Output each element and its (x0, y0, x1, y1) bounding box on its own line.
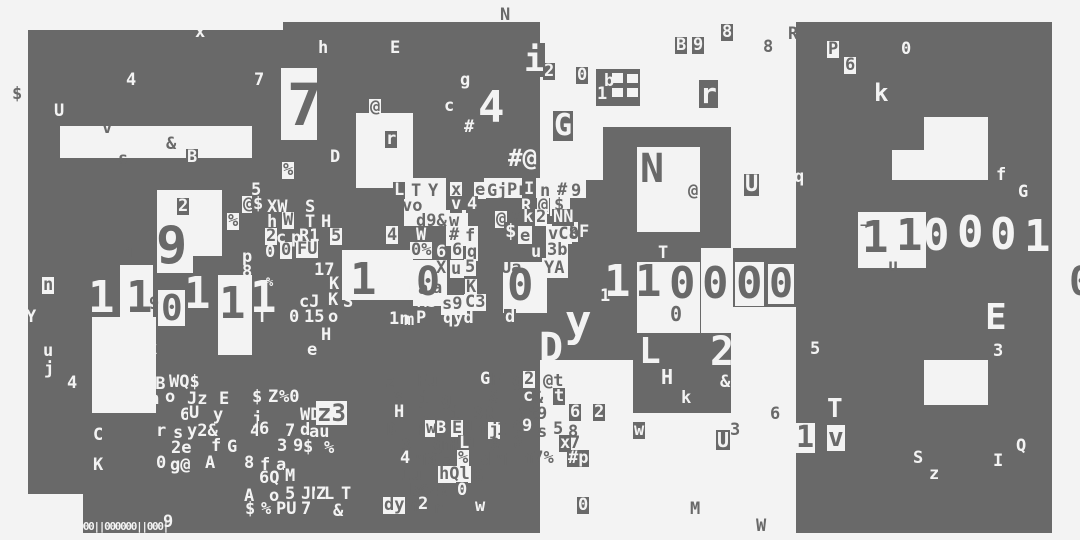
glyph: % (266, 276, 273, 288)
glyph: P (827, 41, 839, 58)
light-region (924, 117, 988, 150)
glyph: 0 (1068, 262, 1080, 302)
glyph: w (633, 422, 645, 439)
light-region (627, 74, 638, 83)
glyph: v (827, 425, 845, 451)
glyph: e (520, 228, 530, 245)
glyph: D (386, 422, 396, 439)
glyph: 0 (669, 262, 696, 306)
glyph: m (404, 312, 414, 329)
glyph: I (993, 453, 1003, 470)
glyph: P (415, 310, 427, 327)
glyph: 0 (155, 455, 167, 472)
glyph: YA (544, 260, 564, 277)
glyph: r (155, 423, 167, 440)
glyph: 4 (67, 375, 77, 392)
glyph: u (888, 258, 898, 275)
glyph: f (996, 167, 1006, 184)
glyph: 1 (896, 214, 923, 258)
glyph: 1 (597, 86, 607, 103)
glyph: E (390, 40, 400, 57)
light-region (892, 150, 988, 180)
glyph: k (522, 209, 534, 226)
glyph: r (385, 131, 397, 148)
glyph: U (188, 405, 200, 422)
glyph: 1 (635, 260, 662, 304)
glyph: Y (26, 309, 36, 326)
glyph: L (639, 334, 661, 370)
glyph: 3b (546, 242, 568, 259)
glyph: H (661, 367, 673, 387)
glyph: 9 (692, 37, 704, 54)
glyph: 9 (571, 183, 581, 200)
dark-region (796, 22, 1052, 533)
glyph: 3 (993, 343, 1003, 360)
glyph: s (118, 151, 128, 168)
glyph: & (166, 136, 176, 153)
glyph: h (318, 40, 328, 57)
glyph: 5 (810, 341, 820, 358)
status-binary-text: 00||0||00||0|0000||000000||000| (3, 521, 168, 532)
glyph: n (42, 277, 54, 294)
glyph: 6Q (259, 470, 279, 487)
glyph: Fu (417, 373, 437, 390)
glyph: 6 (451, 242, 463, 259)
light-region (731, 307, 796, 360)
glyph: % (260, 501, 272, 518)
glyph: x (195, 24, 205, 41)
glyph: 0 (768, 264, 794, 304)
glyph: 2 (710, 332, 734, 372)
glyph: B (473, 468, 483, 485)
glyph: k (681, 390, 691, 407)
glyph: 4 (478, 86, 505, 130)
glyph: F (491, 372, 501, 389)
glyph: 7 (254, 72, 264, 89)
glyph: g (460, 72, 470, 89)
glyph: D (539, 328, 563, 368)
glyph: 2 (543, 63, 555, 80)
glyph: 7 (287, 76, 322, 134)
glyph: 1 (219, 282, 246, 326)
glyph: 0 (456, 482, 468, 499)
glyph: u (43, 343, 53, 360)
glyph: R (788, 26, 798, 43)
glyph: G (479, 371, 491, 388)
glyph: z (929, 466, 939, 483)
glyph: $ (244, 501, 256, 518)
glyph: & (720, 374, 730, 391)
glyph: K (93, 457, 103, 474)
glyph: j (44, 361, 54, 378)
glyph: 0 (288, 309, 300, 326)
glyph: E (985, 300, 1007, 336)
glyph: 1 (1024, 215, 1051, 259)
glyph: 6 (258, 421, 270, 438)
glyph: 3 (730, 422, 740, 439)
glyph: a (149, 391, 159, 408)
glyph: 8 (721, 24, 733, 41)
glyph: r (699, 80, 718, 108)
glyph: FU (296, 241, 318, 258)
glyph: m7% (523, 450, 554, 467)
glyph: H (321, 327, 331, 344)
glyph: 0 (923, 214, 950, 258)
light-region (731, 180, 796, 248)
glyph: 0 (507, 264, 534, 308)
glyph: 9 (149, 296, 159, 313)
glyph: 0 (161, 291, 183, 327)
glyph: H (393, 404, 405, 421)
glyph: 5 (330, 228, 342, 245)
light-region (92, 317, 156, 413)
light-region (28, 494, 83, 540)
glyph: 1 (350, 258, 377, 302)
glyph: n (403, 278, 413, 295)
glyph: N (640, 149, 664, 189)
glyph: 4 (387, 227, 397, 244)
glyph: C (93, 427, 103, 444)
glyph: A (204, 455, 216, 472)
glyph: 0 (416, 262, 440, 302)
glyph: dy (383, 497, 405, 514)
glyph: 6 (770, 406, 780, 423)
glyph: %0 (279, 389, 299, 406)
glyph: & (332, 503, 344, 520)
glyph: 4 (466, 196, 478, 213)
glyph: g (512, 373, 522, 390)
glyph: 0 (990, 213, 1017, 257)
glyph: 15 (304, 309, 324, 326)
glyph: M (497, 452, 507, 469)
glyph: t (553, 388, 565, 405)
glyph: N (500, 7, 510, 24)
glyph: U (716, 430, 730, 450)
glyph: 0 (265, 244, 275, 261)
glyph: ¬ (860, 220, 867, 232)
glyph: 1 (88, 276, 115, 320)
glyph: % (282, 162, 294, 179)
glyph: @ (369, 99, 381, 116)
glyph: k (874, 81, 888, 105)
glyph: c (444, 98, 454, 115)
glyph: $ (251, 389, 263, 406)
glyph: 8 (513, 435, 523, 452)
glyph: % (323, 440, 335, 457)
glyph: $ (12, 86, 22, 103)
glyph: r (433, 500, 443, 517)
light-region (356, 533, 1080, 540)
glyph: 1 (795, 423, 815, 453)
glyph: 0 (670, 304, 682, 324)
glyph: $ (504, 222, 517, 241)
glyph: M (284, 468, 296, 485)
glyph: 6 (569, 404, 581, 421)
glyph: % (227, 213, 239, 230)
glyph: u (451, 261, 461, 278)
glyph: T (257, 309, 267, 326)
glyph: #@ (508, 146, 537, 170)
light-region (60, 126, 252, 158)
glyph: 1 (125, 247, 135, 264)
glyph: U (744, 174, 759, 196)
glyph: M (690, 501, 700, 518)
glyph: Gj (487, 183, 507, 200)
glyph: v (102, 120, 112, 137)
glyph: 1 (184, 272, 211, 316)
glyph: Z (267, 389, 279, 406)
glyph: W (756, 518, 766, 535)
glyph: 9 (156, 220, 187, 272)
glyph: 2 (177, 198, 189, 215)
glyph: Q (1016, 438, 1026, 455)
glyph: 7 (301, 501, 311, 518)
glyph: 0 (957, 211, 984, 255)
terminal-noise-canvas: $x47Uv&sB%D7hENgc4##@@ri2G0b1rB988RP60kq… (0, 0, 1080, 540)
glyph: o (327, 309, 339, 326)
glyph: 2 (417, 496, 429, 513)
glyph: w (474, 498, 486, 515)
glyph: 0% (410, 242, 432, 259)
glyph: G (1018, 184, 1028, 201)
glyph: 0 (577, 497, 589, 514)
glyph: U (54, 103, 64, 120)
glyph: 6 (844, 57, 856, 74)
glyph: s (537, 424, 547, 441)
light-region (627, 88, 638, 97)
glyph: e (306, 342, 318, 359)
light-region (356, 113, 413, 188)
glyph: qyd (443, 310, 474, 327)
glyph: PU (276, 501, 296, 518)
glyph: 9 (537, 406, 547, 423)
glyph: Y (428, 183, 438, 200)
glyph: u (531, 244, 541, 261)
glyph: 0 (735, 262, 764, 306)
glyph: F (578, 224, 590, 241)
glyph: k (147, 341, 157, 358)
glyph: W (282, 212, 294, 229)
glyph: B (186, 149, 198, 166)
glyph: # (464, 119, 474, 136)
glyph: d (504, 309, 516, 326)
glyph: $ (303, 439, 313, 456)
glyph: 0 (280, 242, 292, 259)
glyph: @ (688, 183, 698, 200)
glyph: 4 (126, 72, 136, 89)
glyph: $ (252, 196, 264, 213)
glyph: 4 (534, 226, 544, 243)
glyph: o (164, 389, 176, 406)
glyph: B (675, 37, 687, 54)
glyph: 2 (593, 404, 605, 421)
glyph: 0 (901, 41, 911, 58)
glyph: 1 (600, 288, 610, 305)
glyph: y (565, 300, 592, 344)
glyph: 0 (576, 67, 588, 84)
glyph: q (794, 169, 804, 186)
glyph: 0 (702, 262, 729, 306)
glyph: 5 (464, 259, 476, 276)
glyph: 8 (244, 455, 254, 472)
glyph: #p (567, 450, 589, 467)
glyph: g@ (170, 457, 190, 474)
glyph: 3 (276, 438, 288, 455)
glyph: T (827, 396, 843, 422)
glyph: G (227, 439, 237, 456)
glyph: D (330, 149, 340, 166)
glyph: S (913, 450, 923, 467)
light-region (924, 360, 988, 405)
glyph: 8 (763, 39, 773, 56)
glyph: G (553, 111, 573, 141)
